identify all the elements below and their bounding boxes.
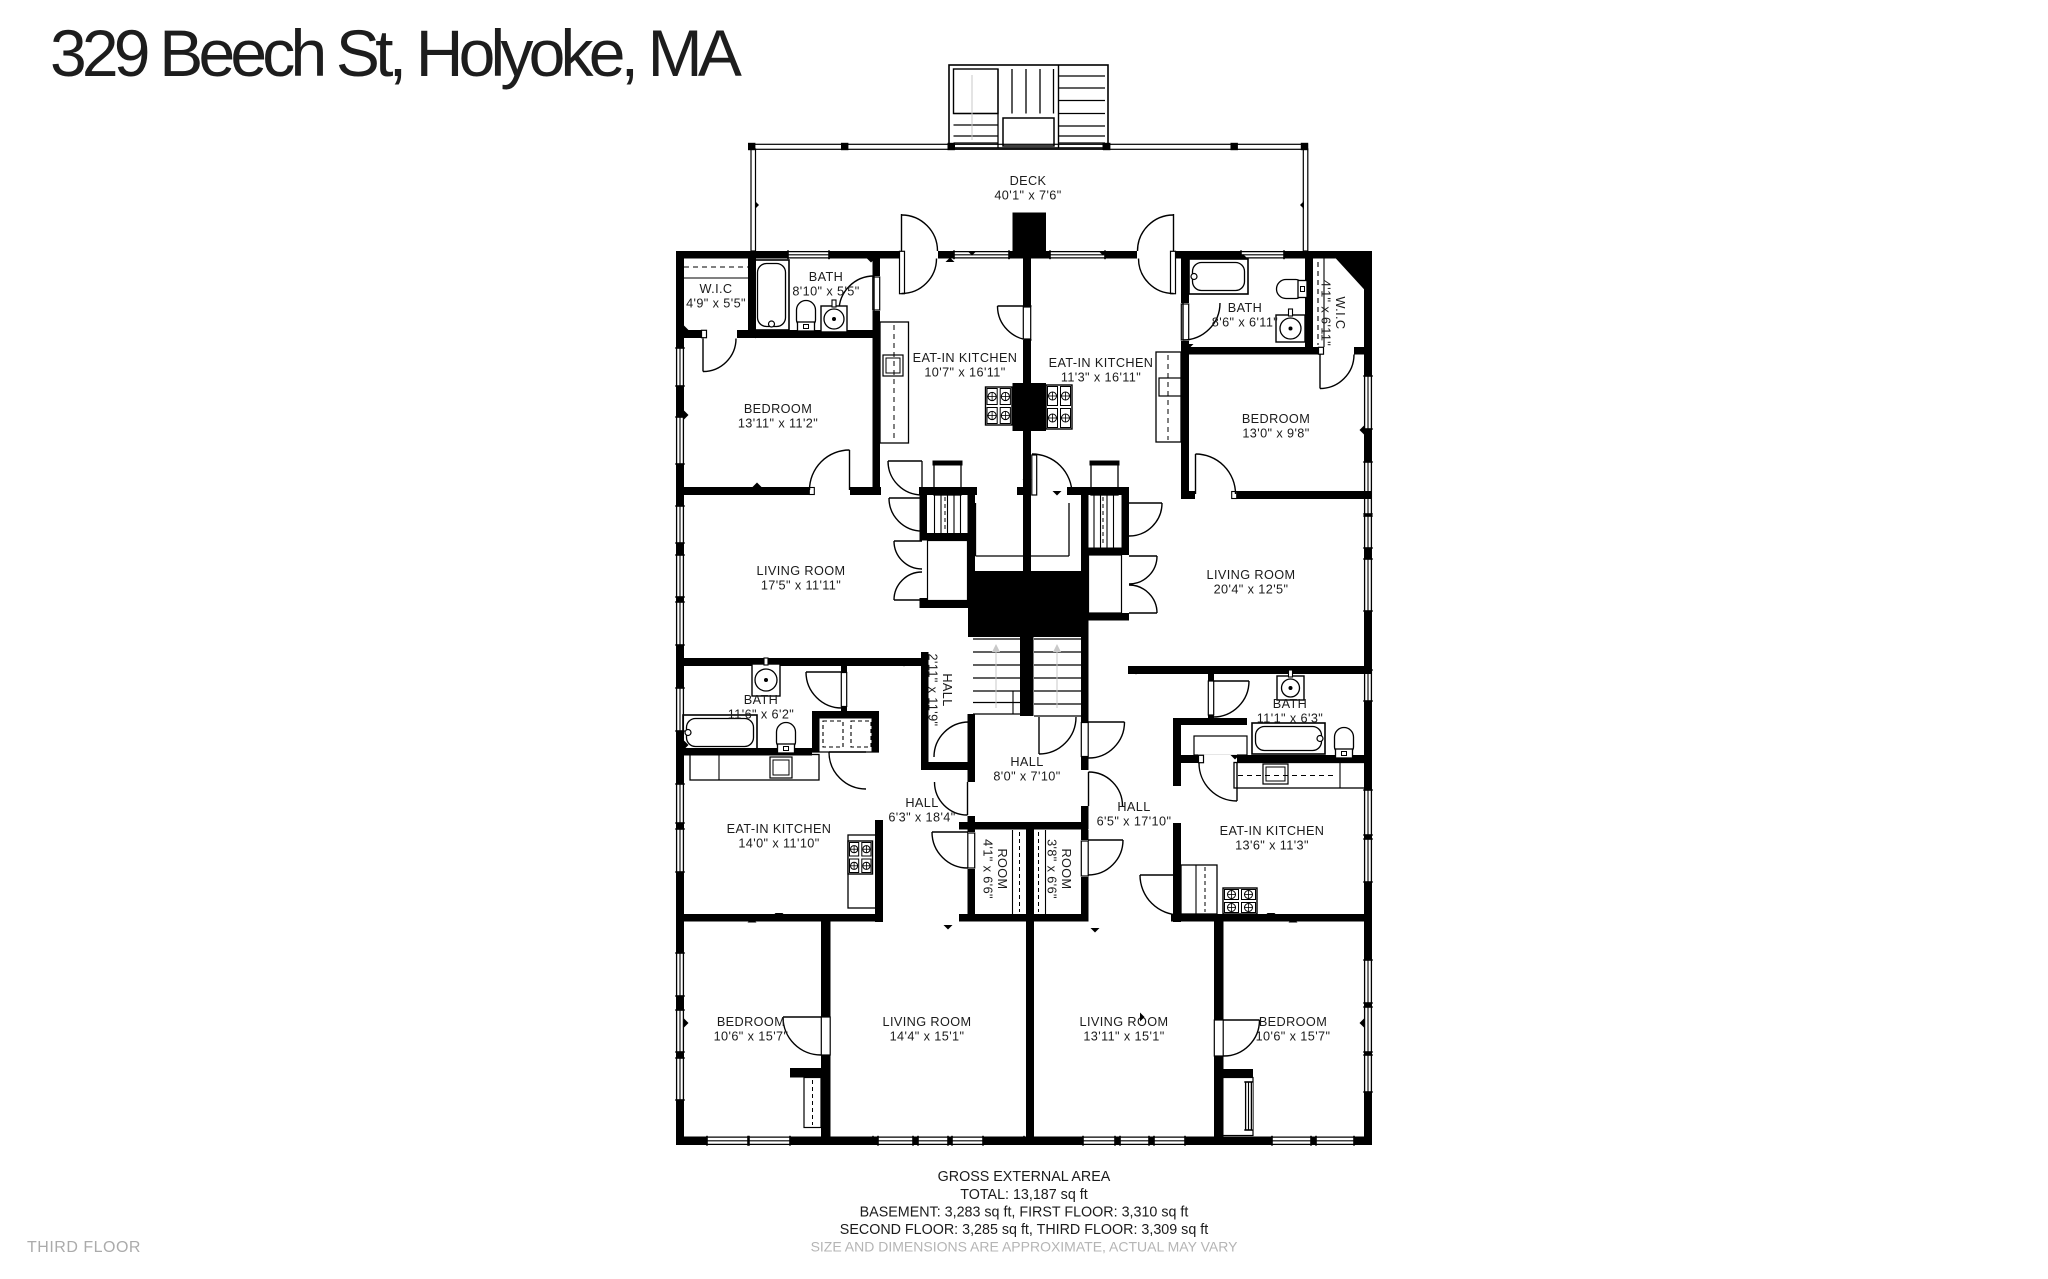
svg-text:ROOM: ROOM: [995, 848, 1009, 889]
svg-text:BEDROOM: BEDROOM: [1242, 412, 1310, 426]
svg-text:11'6" x 6'2": 11'6" x 6'2": [728, 708, 794, 722]
svg-text:10'7" x 16'11": 10'7" x 16'11": [924, 366, 1005, 380]
svg-text:10'6" x 15'7": 10'6" x 15'7": [1256, 1030, 1331, 1044]
svg-text:13'0" x 9'8": 13'0" x 9'8": [1242, 427, 1309, 441]
svg-text:BATH: BATH: [1228, 301, 1263, 315]
svg-text:3'8" x 6'6": 3'8" x 6'6": [1044, 839, 1058, 899]
svg-text:GROSS EXTERNAL AREA: GROSS EXTERNAL AREA: [938, 1169, 1111, 1185]
svg-text:BATH: BATH: [1273, 697, 1308, 711]
svg-text:BATH: BATH: [809, 270, 844, 284]
svg-text:EAT-IN KITCHEN: EAT-IN KITCHEN: [727, 822, 832, 836]
svg-text:ROOM: ROOM: [1059, 848, 1073, 889]
svg-text:LIVING ROOM: LIVING ROOM: [757, 564, 846, 578]
svg-text:TOTAL: 13,187 sq ft: TOTAL: 13,187 sq ft: [960, 1187, 1087, 1203]
svg-text:2'11" x 11'9": 2'11" x 11'9": [925, 654, 939, 727]
svg-text:W.I.C: W.I.C: [699, 282, 732, 296]
svg-text:HALL: HALL: [1117, 800, 1150, 814]
svg-text:DECK: DECK: [1010, 174, 1047, 188]
svg-text:BATH: BATH: [744, 693, 779, 707]
svg-text:8'6" x 6'11": 8'6" x 6'11": [1212, 316, 1278, 330]
svg-text:17'5" x 11'11": 17'5" x 11'11": [761, 579, 841, 593]
svg-text:14'4" x 15'1": 14'4" x 15'1": [890, 1030, 965, 1044]
svg-text:SIZE AND DIMENSIONS ARE APPROX: SIZE AND DIMENSIONS ARE APPROXIMATE, ACT…: [811, 1239, 1239, 1255]
svg-text:THIRD FLOOR: THIRD FLOOR: [27, 1239, 141, 1256]
svg-text:13'6" x 11'3": 13'6" x 11'3": [1235, 839, 1309, 853]
svg-text:BEDROOM: BEDROOM: [717, 1015, 785, 1029]
svg-text:40'1" x 7'6": 40'1" x 7'6": [994, 189, 1061, 203]
svg-text:HALL: HALL: [905, 796, 938, 810]
svg-text:6'5" x 17'10": 6'5" x 17'10": [1097, 815, 1172, 829]
svg-text:11'3" x 16'11": 11'3" x 16'11": [1061, 371, 1141, 385]
svg-text:8'0" x 7'10": 8'0" x 7'10": [993, 770, 1060, 784]
svg-text:LIVING ROOM: LIVING ROOM: [883, 1015, 972, 1029]
svg-text:4'1" x 6'6": 4'1" x 6'6": [980, 839, 994, 899]
svg-text:LIVING ROOM: LIVING ROOM: [1080, 1015, 1169, 1029]
svg-text:8'10" x 5'5": 8'10" x 5'5": [792, 285, 859, 299]
svg-text:W.I.C: W.I.C: [1333, 296, 1347, 329]
svg-text:329 Beech St, Holyoke, MA: 329 Beech St, Holyoke, MA: [50, 16, 742, 90]
svg-text:BEDROOM: BEDROOM: [744, 402, 812, 416]
svg-text:6'3" x 18'4": 6'3" x 18'4": [888, 811, 955, 825]
svg-text:14'0" x 11'10": 14'0" x 11'10": [738, 837, 819, 851]
svg-text:11'1" x 6'3": 11'1" x 6'3": [1257, 712, 1323, 726]
svg-text:EAT-IN KITCHEN: EAT-IN KITCHEN: [1049, 356, 1154, 370]
svg-text:13'11" x 11'2": 13'11" x 11'2": [738, 417, 818, 431]
svg-text:BEDROOM: BEDROOM: [1259, 1015, 1327, 1029]
svg-text:20'4" x 12'5": 20'4" x 12'5": [1214, 583, 1289, 597]
svg-text:BASEMENT: 3,283 sq ft, FIRST F: BASEMENT: 3,283 sq ft, FIRST FLOOR: 3,31…: [860, 1205, 1189, 1221]
svg-text:4'1" x 6'11": 4'1" x 6'11": [1318, 280, 1332, 346]
svg-text:4'9" x 5'5": 4'9" x 5'5": [686, 297, 746, 311]
svg-text:LIVING ROOM: LIVING ROOM: [1207, 568, 1296, 582]
svg-text:10'6" x 15'7": 10'6" x 15'7": [714, 1030, 789, 1044]
svg-text:HALL: HALL: [940, 673, 954, 706]
svg-text:HALL: HALL: [1010, 755, 1043, 769]
svg-text:13'11" x 15'1": 13'11" x 15'1": [1083, 1030, 1164, 1044]
svg-text:EAT-IN KITCHEN: EAT-IN KITCHEN: [913, 351, 1018, 365]
svg-text:SECOND FLOOR: 3,285 sq ft, THI: SECOND FLOOR: 3,285 sq ft, THIRD FLOOR: …: [840, 1222, 1208, 1238]
svg-text:EAT-IN KITCHEN: EAT-IN KITCHEN: [1220, 824, 1325, 838]
